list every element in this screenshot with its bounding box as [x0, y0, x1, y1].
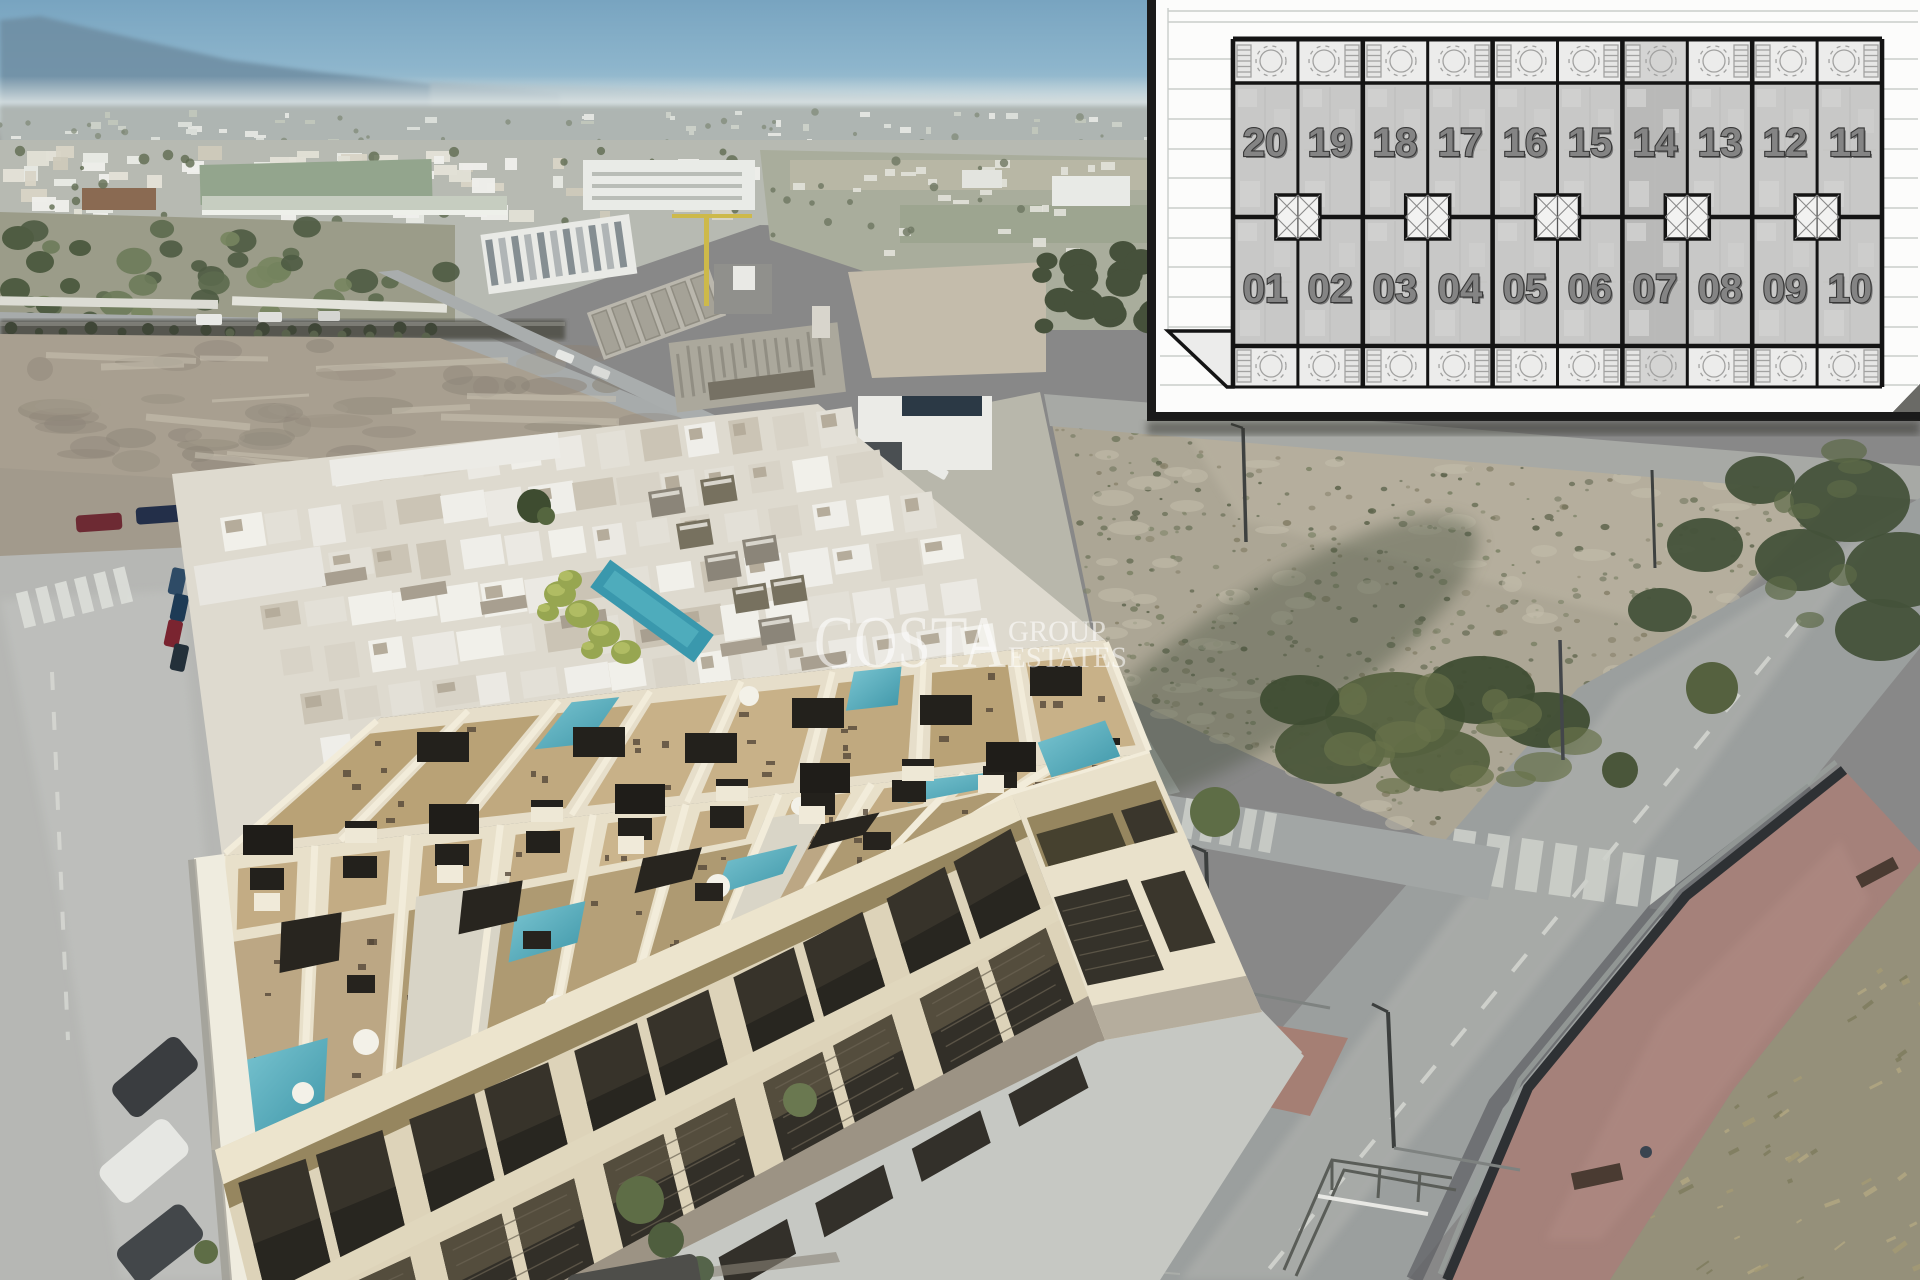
svg-text:18: 18 [1373, 121, 1418, 165]
svg-text:09: 09 [1763, 267, 1808, 311]
svg-text:16: 16 [1503, 121, 1548, 165]
svg-text:03: 03 [1373, 267, 1418, 311]
svg-text:12: 12 [1763, 121, 1808, 165]
svg-text:ESTATES: ESTATES [1008, 641, 1127, 674]
svg-text:04: 04 [1438, 267, 1483, 311]
svg-text:17: 17 [1438, 121, 1483, 165]
svg-text:01: 01 [1243, 267, 1288, 311]
svg-text:13: 13 [1698, 121, 1743, 165]
svg-text:05: 05 [1503, 267, 1548, 311]
svg-text:11: 11 [1829, 121, 1871, 165]
svg-text:COSTA: COSTA [814, 602, 1006, 684]
svg-text:06: 06 [1568, 267, 1613, 311]
svg-text:02: 02 [1308, 267, 1353, 311]
svg-text:20: 20 [1243, 121, 1288, 165]
svg-text:08: 08 [1698, 267, 1743, 311]
svg-text:10: 10 [1828, 267, 1873, 311]
svg-text:14: 14 [1633, 121, 1678, 165]
svg-text:15: 15 [1568, 121, 1613, 165]
svg-text:07: 07 [1633, 267, 1678, 311]
svg-text:19: 19 [1308, 121, 1353, 165]
